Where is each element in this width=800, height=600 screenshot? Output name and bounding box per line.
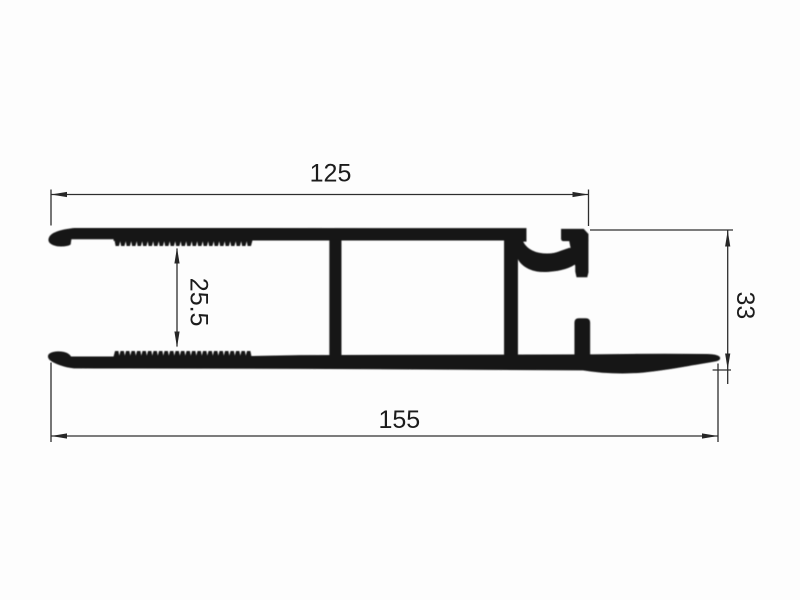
svg-text:155: 155 <box>378 406 420 434</box>
svg-text:33: 33 <box>731 292 759 320</box>
svg-text:25.5: 25.5 <box>184 278 212 327</box>
svg-text:125: 125 <box>310 160 352 188</box>
